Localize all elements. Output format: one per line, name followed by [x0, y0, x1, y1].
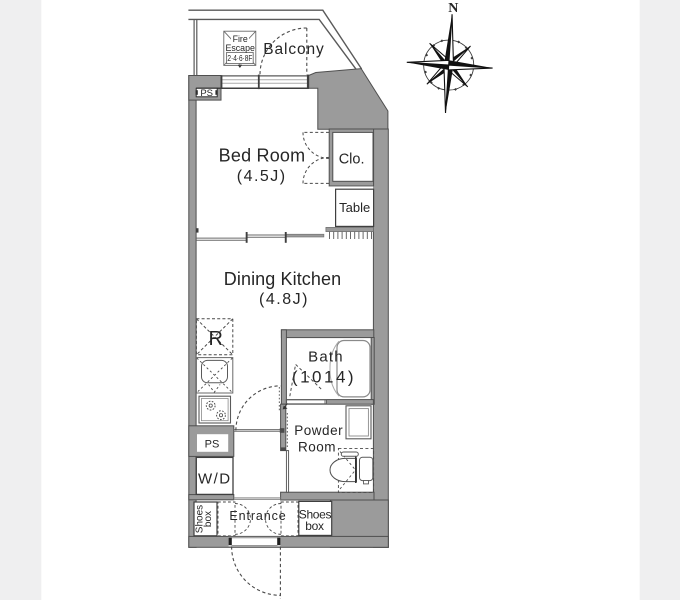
- svg-text:Dining Kitchen: Dining Kitchen: [224, 269, 341, 289]
- svg-text:Escape: Escape: [226, 43, 255, 53]
- svg-text:Balcony: Balcony: [263, 41, 324, 58]
- svg-text:N: N: [448, 1, 458, 16]
- svg-text:Table: Table: [339, 200, 370, 215]
- svg-text:PS: PS: [205, 438, 220, 450]
- svg-text:R: R: [208, 328, 222, 350]
- svg-text:Bed Room: Bed Room: [219, 146, 306, 166]
- svg-text:Room: Room: [298, 439, 336, 454]
- svg-text:Bath: Bath: [308, 349, 344, 366]
- svg-text:PS: PS: [200, 88, 213, 99]
- svg-text:2·4·6·8F: 2·4·6·8F: [227, 54, 252, 63]
- svg-text:Clo.: Clo.: [339, 152, 365, 168]
- svg-text:(4.5J): (4.5J): [237, 168, 287, 185]
- svg-text:W/D: W/D: [198, 470, 232, 487]
- svg-text:(4.8J): (4.8J): [259, 291, 309, 308]
- svg-text:Entrance: Entrance: [229, 509, 286, 523]
- svg-text:box: box: [203, 511, 214, 527]
- svg-text:Powder: Powder: [294, 423, 343, 438]
- svg-text:box: box: [305, 519, 324, 533]
